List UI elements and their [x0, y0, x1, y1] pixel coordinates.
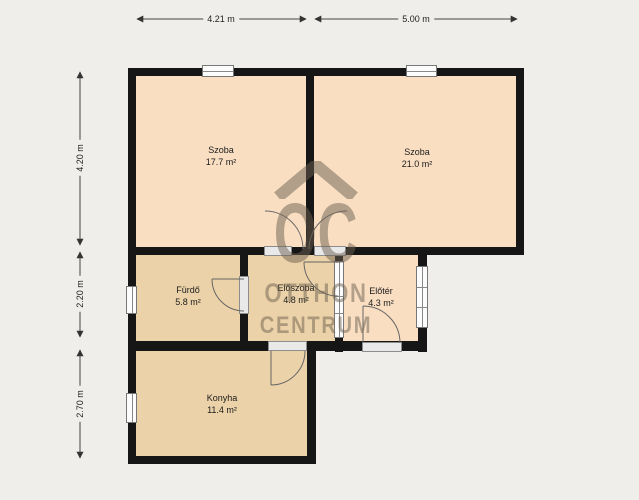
room-label-eloszoba: Előszoba 4.8 m²	[277, 282, 314, 306]
window-szoba-2	[406, 65, 437, 77]
room-name: Szoba	[402, 146, 433, 158]
dim-label-left-3: 2.70 m	[75, 386, 85, 422]
door-sill-entrance	[362, 342, 402, 352]
wall-szoba-divider	[306, 68, 314, 255]
room-name: Szoba	[206, 144, 237, 156]
door-sill-szoba-2	[314, 246, 346, 256]
room-name: Előtér	[368, 285, 394, 297]
room-label-szoba-1: Szoba 17.7 m²	[206, 144, 237, 168]
window-frame-tick	[417, 307, 427, 308]
door-sill-furdo	[239, 276, 249, 314]
dim-label-left-1: 4.20 m	[75, 140, 85, 176]
room-label-szoba-2: Szoba 21.0 m²	[402, 146, 433, 170]
door-sill-konyha	[268, 341, 307, 351]
room-label-furdo: Fürdő 5.8 m²	[175, 284, 201, 308]
room-area: 5.8 m²	[175, 296, 201, 308]
window-konyha	[126, 393, 137, 423]
window-frame-tick	[417, 287, 427, 288]
room-label-eloter: Előtér 4.3 m²	[368, 285, 394, 309]
dim-label-top-1: 4.21 m	[203, 14, 239, 24]
room-name: Konyha	[207, 392, 238, 404]
room-name: Előszoba	[277, 282, 314, 294]
window-furdo	[126, 286, 137, 314]
room-name: Fürdő	[175, 284, 201, 296]
window-frame-tick	[335, 313, 343, 314]
room-label-konyha: Konyha 11.4 m²	[207, 392, 238, 416]
room-area: 11.4 m²	[207, 404, 238, 416]
room-area: 21.0 m²	[402, 158, 433, 170]
floor-plan: 4.21 m 5.00 m 4.20 m 2.20 m 2.70 m Szoba…	[0, 0, 639, 500]
dim-label-top-2: 5.00 m	[398, 14, 434, 24]
dim-label-left-2: 2.20 m	[75, 276, 85, 312]
wall-bottom	[128, 456, 316, 464]
wall-right-upper	[516, 68, 524, 255]
window-eloter	[416, 266, 428, 328]
wall-konyha-right	[307, 351, 316, 464]
window-szoba-1	[202, 65, 234, 77]
room-area: 4.3 m²	[368, 297, 394, 309]
glass-panel-eloszoba-eloter	[334, 261, 344, 338]
door-sill-szoba-1	[264, 246, 292, 256]
wall-top	[128, 68, 524, 76]
window-frame-tick	[335, 296, 343, 297]
room-area: 17.7 m²	[206, 156, 237, 168]
room-area: 4.8 m²	[277, 294, 314, 306]
